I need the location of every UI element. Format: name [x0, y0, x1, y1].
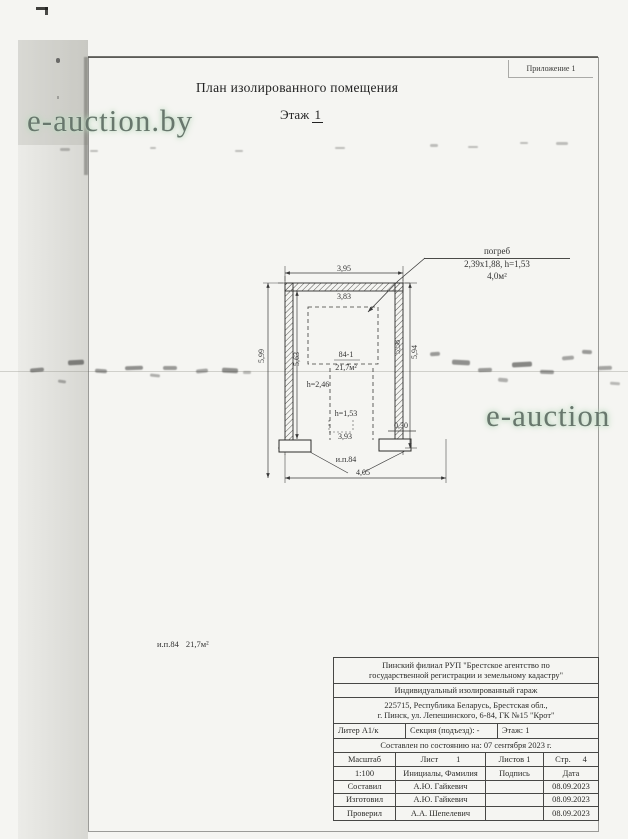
premises-label: и.п.84 [157, 639, 179, 649]
premises-area: 21,7м² [186, 639, 209, 649]
watermark-e-auction: e-auction [486, 398, 610, 434]
scan-artifact [598, 366, 612, 370]
dim-top-inner: 3,83 [337, 292, 351, 301]
scanned-floor-plan-page: { "page": { "appendix": "Приложение 1", … [0, 0, 628, 839]
page-title: План изолированного помещения [196, 80, 398, 96]
table-row: Литер А1/к Секция (подъезд): - Этаж: 1 [334, 724, 599, 739]
dim-pilaster: 0,30 [394, 421, 408, 430]
agency-cell: Пинский филиал РУП "Брестское агентство … [334, 658, 599, 684]
role-cell: Проверил [334, 807, 396, 821]
table-row: 1:100 Инициалы, Фамилия Подпись Дата [334, 767, 599, 781]
dim-top-outer: 3,95 [337, 264, 351, 273]
compiled-date-cell: Составлен по состоянию на: 07 сентября 2… [334, 739, 599, 753]
scan-artifact [68, 360, 84, 366]
opening-label: и.п.84 [336, 455, 357, 464]
dim-pit-width: 3,93 [338, 432, 352, 441]
floor-number: 1 [312, 107, 323, 123]
dim-right-outer: 5,94 [410, 345, 419, 359]
liter-cell: Литер А1/к [334, 724, 406, 739]
sheet-value: 1 [456, 755, 460, 765]
room-area: 21,7м² [335, 363, 357, 372]
name-cell: А.А. Шепелевич [396, 807, 486, 821]
scale-value-cell: 1:100 [334, 767, 396, 781]
dim-right-inner: 5,58 [393, 340, 402, 354]
role-cell: Составил [334, 781, 396, 794]
table-row: Составил А.Ю. Гайкевич 08.09.2023 [334, 781, 599, 794]
dim-bottom: 4,05 [356, 468, 370, 477]
dim-left-outer: 5,99 [257, 349, 266, 363]
role-cell: Изготовил [334, 794, 396, 807]
room-number: 84-1 [339, 350, 354, 359]
signature-cell [486, 807, 544, 821]
scan-artifact [57, 96, 59, 99]
address-cell: 225715, Республика Беларусь, Брестская о… [334, 698, 599, 724]
address-line1: 225715, Республика Беларусь, Брестская о… [384, 701, 547, 711]
cellar-area: 4,0м² [487, 271, 507, 281]
floor-cell: Этаж: 1 [498, 724, 599, 739]
scan-artifact [610, 382, 620, 386]
floor-plan-drawing: 3,95 3,83 5,99 5,63 5,58 5,94 84-1 21,7м… [250, 235, 480, 500]
title-block: Пинский филиал РУП "Брестское агентство … [333, 657, 599, 821]
sheet-label: Лист [421, 755, 439, 765]
sheet-cell: Лист 1 [396, 753, 486, 767]
pit-bracket [329, 420, 353, 432]
table-row: Индивидуальный изолированный гараж [334, 684, 599, 698]
signature-cell [486, 794, 544, 807]
scan-artifact [60, 148, 70, 151]
agency-line2: государственной регистрации и земельному… [369, 671, 563, 681]
watermark-e-auction-by: e-auction.by [27, 103, 193, 139]
scale-header-cell: Масштаб [334, 753, 396, 767]
sheets-cell: Листов 1 [486, 753, 544, 767]
premises-summary: и.п.8421,7м² [157, 639, 216, 649]
scan-artifact [45, 7, 48, 15]
date-cell: 08.09.2023 [544, 794, 599, 807]
table-row: Масштаб Лист 1 Листов 1 Стр. 4 [334, 753, 599, 767]
pit-height: h=1,53 [335, 409, 358, 418]
floor-label: Этаж [280, 107, 309, 122]
appendix-label: Приложение 1 [508, 60, 593, 78]
table-row: Проверил А.А. Шепелевич 08.09.2023 [334, 807, 599, 821]
cellar-dashed-outline [308, 307, 378, 440]
page-label: Стр. [555, 755, 571, 765]
room-height: h=2,46 [307, 380, 330, 389]
table-row: Составлен по состоянию на: 07 сентября 2… [334, 739, 599, 753]
agency-line1: Пинский филиал РУП "Брестское агентство … [382, 661, 550, 671]
table-row: Пинский филиал РУП "Брестское агентство … [334, 658, 599, 684]
address-line2: г. Пинск, ул. Лепешинского, 6-84, ГК №15… [378, 711, 555, 721]
page-border-top [88, 56, 598, 58]
name-cell: А.Ю. Гайкевич [396, 781, 486, 794]
page-value: 4 [583, 755, 587, 765]
name-cell: А.Ю. Гайкевич [396, 794, 486, 807]
signature-cell [486, 781, 544, 794]
date-cell: 08.09.2023 [544, 781, 599, 794]
object-type-cell: Индивидуальный изолированный гараж [334, 684, 599, 698]
dim-left-inner: 5,63 [292, 352, 301, 366]
date-header-cell: Дата [544, 767, 599, 781]
section-cell: Секция (подъезд): - [406, 724, 498, 739]
scan-shadow-band [18, 40, 88, 839]
initials-header-cell: Инициалы, Фамилия [396, 767, 486, 781]
table-row: Изготовил А.Ю. Гайкевич 08.09.2023 [334, 794, 599, 807]
page-cell: Стр. 4 [544, 753, 599, 767]
date-cell: 08.09.2023 [544, 807, 599, 821]
floor-heading: Этаж 1 [280, 107, 323, 123]
signature-header-cell: Подпись [486, 767, 544, 781]
table-row: 225715, Республика Беларусь, Брестская о… [334, 698, 599, 724]
scan-artifact [56, 58, 60, 63]
